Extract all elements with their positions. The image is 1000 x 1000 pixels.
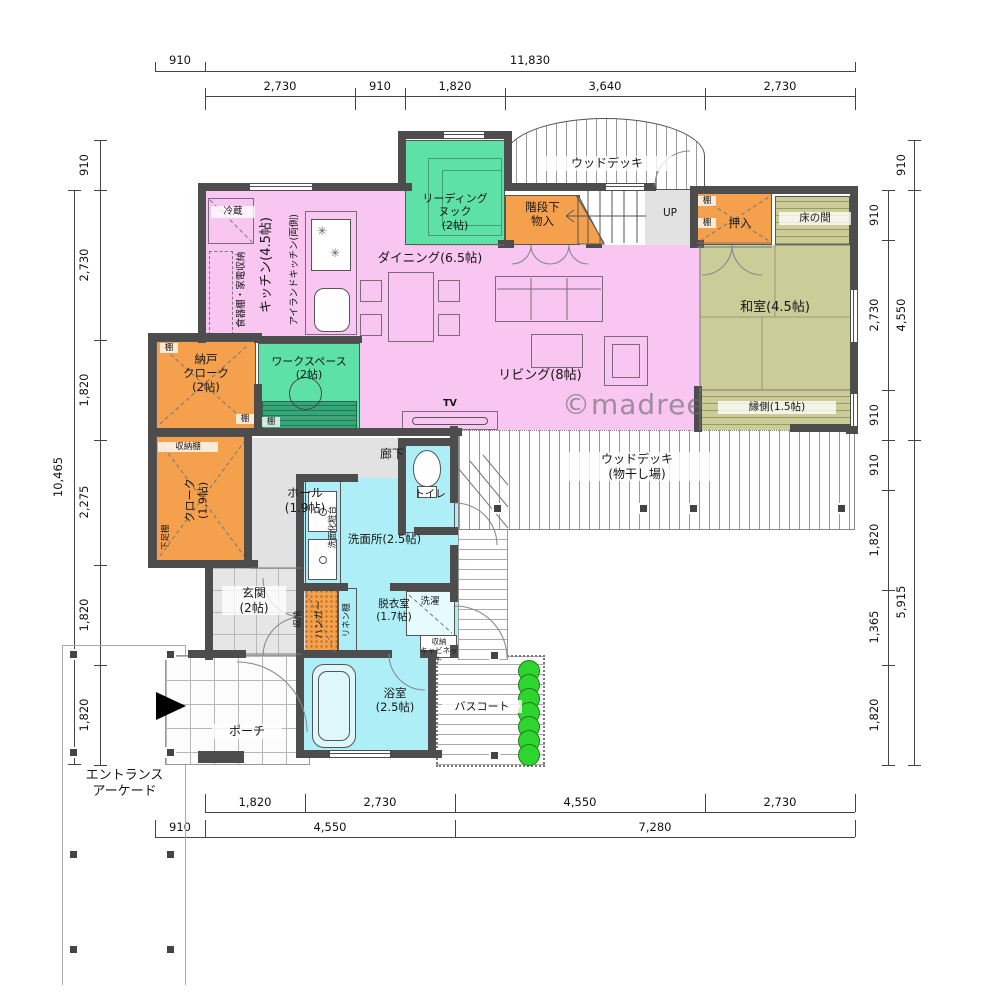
wall: [850, 194, 858, 294]
wall: [504, 131, 512, 191]
dim-tick: [882, 665, 895, 666]
dim-label: 910: [867, 435, 881, 495]
dining-chair: [360, 314, 382, 336]
dining-chair: [438, 280, 460, 302]
dim-label: 1,820: [77, 585, 91, 645]
deck-post: [638, 503, 649, 514]
dim-tick: [855, 794, 856, 812]
dining-table: [388, 272, 434, 342]
room-nando-floor: [156, 341, 256, 429]
arcade-outline: [62, 645, 186, 646]
arcade-outline: [62, 645, 63, 985]
wall: [205, 560, 213, 660]
dim-label: 2,730: [705, 795, 855, 809]
linen-shelf-strip: [338, 588, 357, 658]
dim-tick: [882, 390, 895, 391]
dim-label: 2,730: [205, 79, 355, 93]
dim-line: [155, 71, 855, 72]
dim-line: [888, 190, 889, 765]
dim-label: 4,550: [205, 820, 455, 834]
dim-line: [914, 140, 915, 765]
room-stairs-floor: [580, 190, 645, 245]
dim-line: [205, 96, 855, 97]
dim-label: 5,915: [894, 572, 908, 632]
washing-machine: [406, 591, 455, 636]
wall: [254, 336, 362, 343]
toilet-tank: [417, 486, 437, 498]
sofa: [495, 276, 603, 322]
dim-line: [100, 140, 101, 765]
wall: [850, 342, 858, 394]
dim-tick: [855, 820, 856, 837]
arcade-pillar: [165, 849, 176, 860]
bathtub-inner: [318, 671, 350, 741]
wall: [586, 240, 602, 248]
dim-label: 10,465: [51, 437, 65, 517]
wall: [790, 424, 858, 432]
watermark: ©madree: [562, 388, 705, 421]
arcade-pillar: [68, 849, 79, 860]
plant-icon: [518, 744, 540, 766]
wall: [254, 428, 462, 436]
dim-tick: [94, 665, 107, 666]
arcade-pillar: [165, 649, 176, 660]
dim-label: 1,820: [77, 685, 91, 745]
wall: [450, 545, 458, 602]
wall: [296, 635, 304, 658]
dim-tick: [908, 140, 921, 141]
dim-label: 910: [867, 185, 881, 245]
floorplan-canvas: 910 11,830 2,730 910 1,820 3,640 2,730 1…: [0, 0, 1000, 1000]
dim-line: [74, 190, 75, 765]
room-porch-floor: [165, 655, 310, 765]
dim-label: 910: [155, 820, 205, 834]
window: [330, 750, 390, 758]
dining-chair: [438, 314, 460, 336]
nook-bench-inner: [442, 170, 502, 226]
room-washitsu-floor: [700, 245, 850, 390]
dining-chair: [360, 280, 382, 302]
wall: [398, 438, 458, 446]
dim-line: [155, 837, 855, 838]
dim-line: [205, 812, 855, 813]
sink-drain-icon: [319, 508, 327, 516]
deck-post: [836, 503, 847, 514]
window: [850, 394, 858, 426]
wall: [296, 563, 304, 583]
dim-label: 4,550: [894, 285, 908, 345]
wall: [693, 186, 858, 194]
dim-label: 1,820: [867, 685, 881, 745]
court-post: [489, 650, 500, 661]
dim-label: 2,730: [77, 235, 91, 295]
dim-tick: [68, 764, 81, 765]
dim-tick: [94, 565, 107, 566]
room-stair-storage-floor: [505, 195, 580, 245]
dim-label: 910: [77, 135, 91, 195]
dim-label: 3,640: [505, 79, 705, 93]
arcade-label: エントランス アーケード: [62, 768, 187, 800]
room-deck-laundry-floor: [458, 430, 855, 530]
room-wood-deck-top-floor: [505, 118, 705, 190]
wall: [296, 474, 358, 482]
dim-tick: [908, 765, 921, 766]
wall: [244, 428, 252, 561]
room-tokonoma-floor: [775, 196, 850, 245]
dim-label: 1,820: [405, 79, 505, 93]
dim-label: 910: [355, 79, 405, 93]
wall: [498, 240, 514, 248]
window: [850, 290, 858, 342]
window: [606, 183, 644, 191]
dim-label: 1,820: [77, 360, 91, 420]
dim-label: 2,730: [867, 285, 881, 345]
workspace-chair: [289, 377, 322, 410]
room-cloak-floor: [156, 436, 250, 561]
room-genkan-floor: [212, 568, 302, 655]
dim-tick: [94, 440, 107, 441]
wall: [428, 650, 436, 758]
wall: [298, 583, 348, 591]
wall: [296, 650, 392, 658]
wall: [692, 240, 704, 248]
wall: [148, 333, 262, 341]
dim-tick: [94, 190, 107, 191]
arcade-pillar: [165, 747, 176, 758]
wall: [296, 474, 304, 570]
coffee-table: [531, 334, 583, 368]
dim-label: 1,365: [867, 597, 881, 657]
dish-shelf: [209, 251, 233, 335]
hanger-closet-strip: [303, 588, 338, 658]
fridge: [208, 198, 254, 244]
dim-label: 7,280: [455, 820, 855, 834]
stove-burner-icon: [317, 224, 327, 238]
dim-label: 910: [894, 135, 908, 195]
wall: [398, 131, 406, 191]
wall: [148, 428, 256, 436]
wall: [148, 560, 258, 568]
window: [444, 131, 484, 139]
dim-tick: [855, 88, 856, 110]
dim-tick: [908, 440, 921, 441]
wall: [198, 183, 206, 343]
arcade-pillar: [68, 649, 79, 660]
dim-tick: [908, 190, 921, 191]
armchair-cushion: [612, 344, 640, 378]
toilet-bowl: [413, 450, 441, 487]
dim-tick: [94, 765, 107, 766]
dim-tick: [882, 440, 895, 441]
dim-tick: [94, 340, 107, 341]
wall: [188, 650, 246, 658]
deck-walkway-floor: [458, 530, 508, 660]
deck-post: [688, 503, 699, 514]
porch-wall-stub: [198, 751, 244, 763]
window: [250, 183, 312, 191]
wall: [450, 645, 458, 658]
dim-tick: [94, 140, 107, 141]
wall: [148, 333, 156, 568]
stove-burner-icon: [330, 246, 340, 260]
dim-tick: [855, 62, 856, 72]
sink-drain-icon: [319, 556, 327, 564]
court-post: [489, 750, 500, 761]
arcade-pillar: [68, 944, 79, 955]
dim-tick: [882, 765, 895, 766]
dim-label: 1,820: [205, 795, 305, 809]
wall: [296, 650, 304, 758]
arcade-pillar: [68, 747, 79, 758]
wall: [414, 527, 458, 535]
wall: [390, 583, 458, 591]
dim-label: 2,275: [77, 472, 91, 532]
entrance-arrow-icon: [156, 692, 186, 720]
kitchen-sink: [314, 288, 350, 332]
arcade-pillar: [165, 944, 176, 955]
dim-label: 1,820: [867, 510, 881, 570]
dim-label: 2,730: [305, 795, 455, 809]
wall: [690, 186, 698, 248]
dim-label: 4,550: [455, 795, 705, 809]
dim-tick: [882, 490, 895, 491]
dim-label: 2,730: [705, 79, 855, 93]
room-oshiire-floor: [697, 193, 772, 245]
dim-tick: [882, 240, 895, 241]
deck-post: [492, 503, 503, 514]
tv-screen: [412, 417, 488, 425]
dim-label: 11,830: [205, 53, 855, 67]
wall: [398, 438, 406, 535]
dim-label: 910: [155, 53, 205, 67]
